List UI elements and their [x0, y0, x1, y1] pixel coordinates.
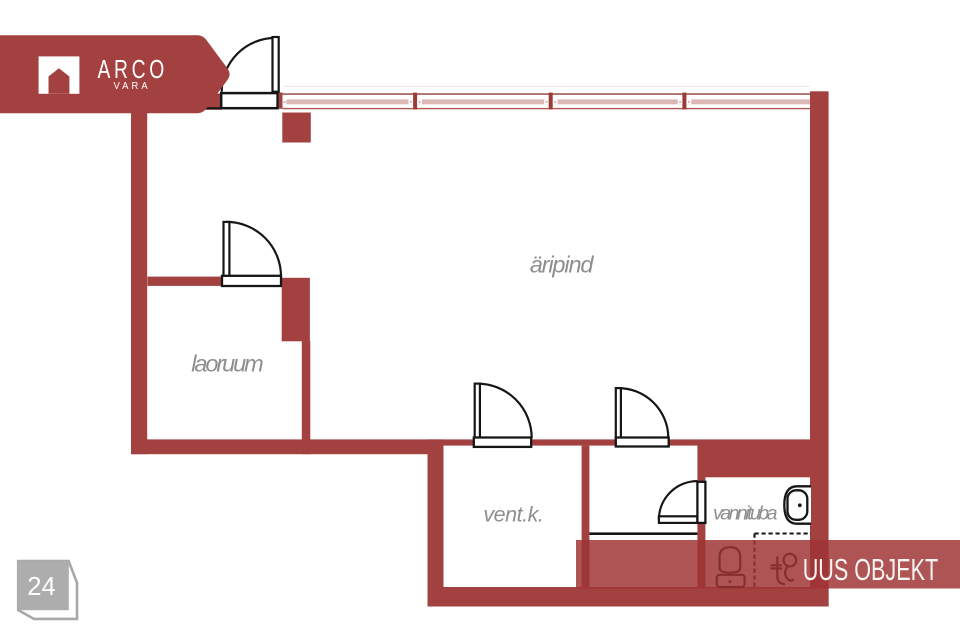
svg-text:laoruum: laoruum	[191, 351, 264, 377]
svg-text:VARA: VARA	[114, 81, 151, 92]
svg-text:vannituba: vannituba	[713, 503, 778, 525]
svg-text:äripind: äripind	[530, 251, 595, 277]
svg-text:24: 24	[27, 573, 55, 601]
svg-text:vent.k.: vent.k.	[483, 503, 544, 527]
svg-text:UUS OBJEKT: UUS OBJEKT	[803, 552, 939, 587]
svg-text:ARCO: ARCO	[98, 54, 169, 84]
